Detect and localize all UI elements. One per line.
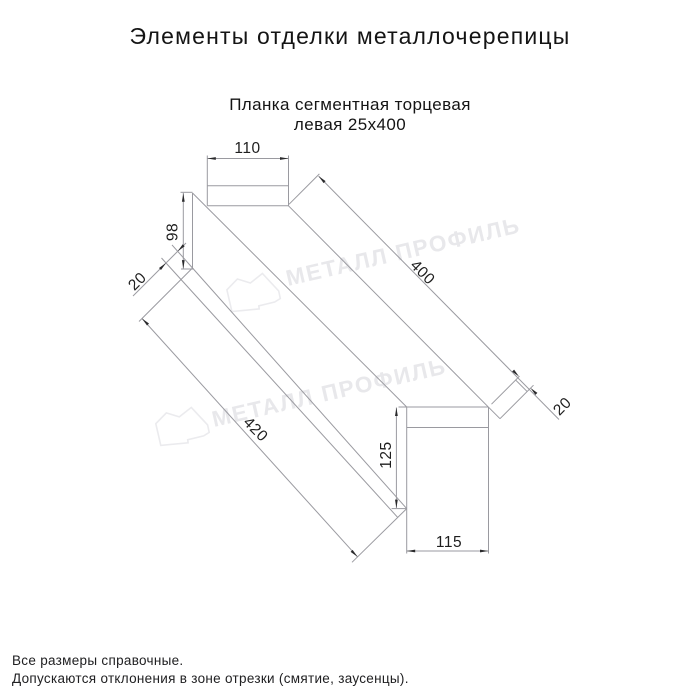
svg-text:115: 115 xyxy=(436,534,462,551)
svg-text:20: 20 xyxy=(550,394,575,419)
svg-text:20: 20 xyxy=(125,269,150,294)
svg-text:125: 125 xyxy=(378,441,395,468)
svg-text:МЕТАЛЛ ПРОФИЛЬ: МЕТАЛЛ ПРОФИЛЬ xyxy=(284,213,523,291)
svg-text:110: 110 xyxy=(234,140,260,157)
svg-text:98: 98 xyxy=(164,223,181,241)
